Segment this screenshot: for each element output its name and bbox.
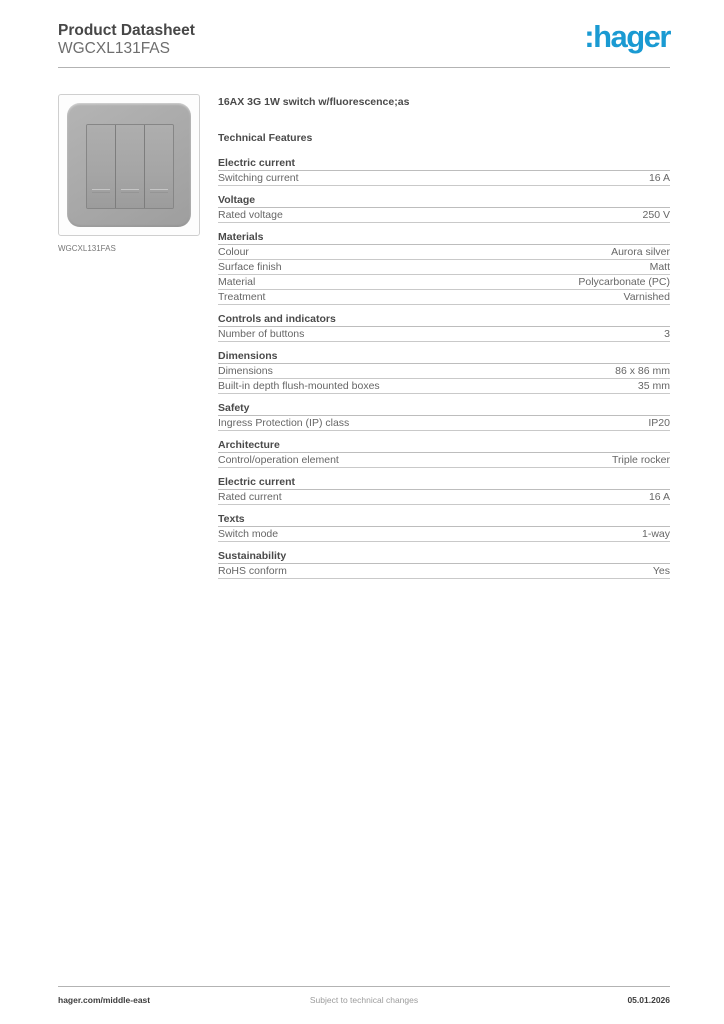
spec-label: RoHS conform <box>218 565 287 577</box>
spec-section-heading: Electric current <box>218 157 670 171</box>
spec-section-heading: Texts <box>218 513 670 527</box>
spec-section: Sustainability RoHS conform Yes <box>218 550 670 579</box>
spec-label: Number of buttons <box>218 328 304 340</box>
rocker-3 <box>144 125 173 208</box>
spec-value: 1-way <box>642 528 670 540</box>
spec-section-heading: Materials <box>218 231 670 245</box>
rocker-2 <box>115 125 144 208</box>
spec-section: Electric current Rated current 16 A <box>218 476 670 505</box>
spec-row: Material Polycarbonate (PC) <box>218 275 670 290</box>
product-image <box>58 94 200 236</box>
product-image-caption: WGCXL131FAS <box>58 244 218 253</box>
main-content: WGCXL131FAS 16AX 3G 1W switch w/fluoresc… <box>58 94 670 587</box>
header: Product Datasheet WGCXL131FAS :hager <box>58 0 670 58</box>
spec-row: Dimensions 86 x 86 mm <box>218 364 670 379</box>
spec-value: 35 mm <box>638 380 670 392</box>
spec-value: 16 A <box>649 491 670 503</box>
page-title: Product Datasheet <box>58 22 195 40</box>
spec-section: Architecture Control/operation element T… <box>218 439 670 468</box>
spec-row: Control/operation element Triple rocker <box>218 453 670 468</box>
spec-section-heading: Controls and indicators <box>218 313 670 327</box>
technical-features-heading: Technical Features <box>218 132 670 144</box>
spec-row: Colour Aurora silver <box>218 245 670 260</box>
spec-row: RoHS conform Yes <box>218 564 670 579</box>
spec-section: Voltage Rated voltage 250 V <box>218 194 670 223</box>
spec-value: IP20 <box>648 417 670 429</box>
spec-sections: Electric current Switching current 16 A … <box>218 157 670 579</box>
spec-section-heading: Sustainability <box>218 550 670 564</box>
spec-label: Surface finish <box>218 261 282 273</box>
footer: hager.com/middle-east Subject to technic… <box>58 986 670 1005</box>
spec-column: 16AX 3G 1W switch w/fluorescence;as Tech… <box>218 94 670 587</box>
spec-label: Control/operation element <box>218 454 339 466</box>
spec-value: Matt <box>650 261 670 273</box>
spec-row: Switch mode 1-way <box>218 527 670 542</box>
spec-section-heading: Architecture <box>218 439 670 453</box>
rocker-1 <box>87 125 115 208</box>
spec-label: Ingress Protection (IP) class <box>218 417 349 429</box>
switch-plate <box>67 103 191 227</box>
spec-section-heading: Electric current <box>218 476 670 490</box>
footer-date: 05.01.2026 <box>466 995 670 1005</box>
footer-website: hager.com/middle-east <box>58 995 262 1005</box>
spec-label: Switch mode <box>218 528 278 540</box>
spec-label: Rated current <box>218 491 282 503</box>
spec-section: Dimensions Dimensions 86 x 86 mm Built-i… <box>218 350 670 394</box>
spec-value: Yes <box>653 565 670 577</box>
product-reference: WGCXL131FAS <box>58 40 195 58</box>
footer-disclaimer: Subject to technical changes <box>262 995 466 1005</box>
switch-rockers <box>86 124 174 209</box>
spec-row: Treatment Varnished <box>218 290 670 305</box>
spec-section: Controls and indicators Number of button… <box>218 313 670 342</box>
spec-value: Triple rocker <box>612 454 670 466</box>
spec-value: Varnished <box>623 291 670 303</box>
spec-label: Colour <box>218 246 249 258</box>
spec-label: Rated voltage <box>218 209 283 221</box>
spec-value: Polycarbonate (PC) <box>578 276 670 288</box>
spec-row: Switching current 16 A <box>218 171 670 186</box>
hager-logo: :hager <box>584 24 670 50</box>
spec-section-heading: Dimensions <box>218 350 670 364</box>
header-titles: Product Datasheet WGCXL131FAS <box>58 22 195 58</box>
spec-label: Dimensions <box>218 365 273 377</box>
product-image-column: WGCXL131FAS <box>58 94 218 587</box>
spec-row: Rated voltage 250 V <box>218 208 670 223</box>
spec-label: Switching current <box>218 172 299 184</box>
spec-value: 16 A <box>649 172 670 184</box>
spec-section-heading: Safety <box>218 402 670 416</box>
spec-value: Aurora silver <box>611 246 670 258</box>
spec-value: 250 V <box>643 209 670 221</box>
spec-row: Surface finish Matt <box>218 260 670 275</box>
spec-value: 3 <box>664 328 670 340</box>
spec-value: 86 x 86 mm <box>615 365 670 377</box>
datasheet-page: Product Datasheet WGCXL131FAS :hager WGC… <box>0 0 724 1024</box>
spec-section: Electric current Switching current 16 A <box>218 157 670 186</box>
spec-section: Materials Colour Aurora silver Surface f… <box>218 231 670 305</box>
spec-row: Number of buttons 3 <box>218 327 670 342</box>
spec-label: Treatment <box>218 291 265 303</box>
spec-row: Rated current 16 A <box>218 490 670 505</box>
header-divider <box>58 67 670 68</box>
spec-row: Built-in depth flush-mounted boxes 35 mm <box>218 379 670 394</box>
spec-section: Texts Switch mode 1-way <box>218 513 670 542</box>
spec-label: Material <box>218 276 255 288</box>
spec-section: Safety Ingress Protection (IP) class IP2… <box>218 402 670 431</box>
spec-section-heading: Voltage <box>218 194 670 208</box>
spec-label: Built-in depth flush-mounted boxes <box>218 380 380 392</box>
spec-row: Ingress Protection (IP) class IP20 <box>218 416 670 431</box>
product-title: 16AX 3G 1W switch w/fluorescence;as <box>218 96 670 108</box>
